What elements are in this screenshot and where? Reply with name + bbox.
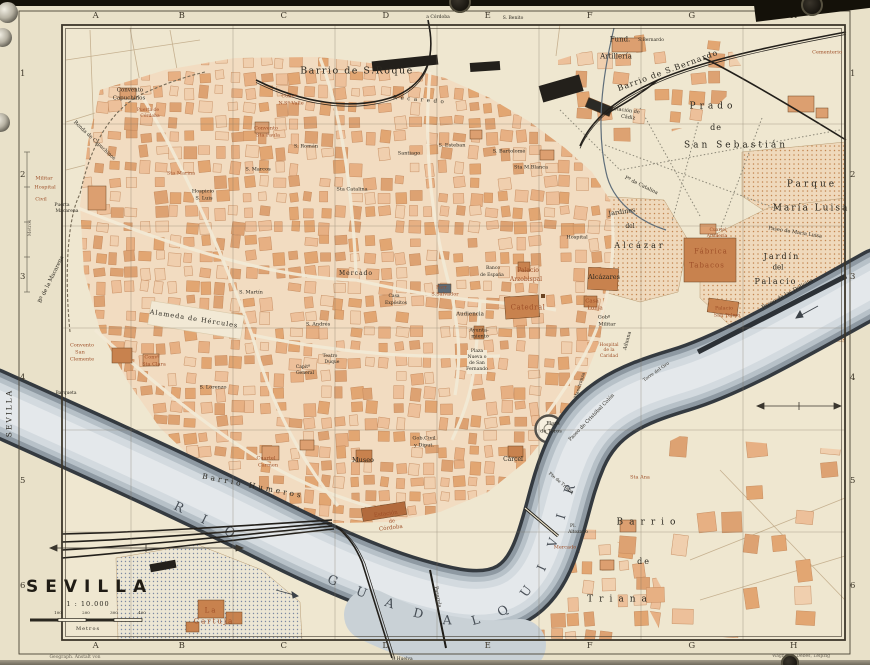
landmark-building — [684, 238, 736, 282]
photo-edge-top — [0, 0, 870, 6]
landmark-building — [255, 122, 269, 133]
map-title-block: SEVILLA 1 : 10.000 100200300400 Metros — [26, 577, 150, 632]
landmark-building — [88, 186, 106, 210]
landmark-building — [438, 284, 451, 293]
landmark-building — [816, 108, 828, 118]
photo-edge-bottom — [0, 660, 870, 665]
landmark-building — [226, 612, 242, 624]
landmark-building — [112, 348, 132, 363]
scale-bar: 100200300400 — [26, 610, 150, 626]
landmark-building — [120, 88, 136, 99]
landmark-building — [470, 130, 482, 139]
plaza-nueva — [467, 350, 487, 374]
landmark-building — [700, 224, 716, 234]
landmark-building — [584, 296, 597, 307]
landmark-building — [612, 38, 642, 52]
map-base-artwork: RIO GUADALQUIVIR — [0, 0, 870, 665]
landmark-building — [198, 600, 224, 618]
map-sheet: RIO GUADALQUIVIR — [0, 0, 870, 665]
map-title: SEVILLA — [26, 577, 150, 597]
map-scale-ratio: 1 : 10.000 — [26, 600, 150, 608]
landmark-building — [788, 96, 814, 112]
landmark-building — [262, 446, 279, 460]
landmark-building — [143, 354, 159, 366]
landmark-building — [587, 267, 618, 291]
landmark-building — [504, 295, 539, 319]
landmark-building — [300, 440, 314, 450]
landmark-building — [600, 560, 614, 570]
map-scale-unit: Metros — [26, 626, 150, 632]
landmark-building — [356, 450, 372, 462]
landmark-building — [186, 622, 199, 632]
landmark-building — [540, 150, 554, 160]
punch-hole — [781, 654, 799, 665]
landmark-building — [508, 446, 523, 457]
landmark-building — [518, 262, 530, 271]
giralda — [541, 294, 545, 298]
scale-bar-graphic — [26, 615, 150, 625]
landmark-building — [620, 520, 636, 532]
